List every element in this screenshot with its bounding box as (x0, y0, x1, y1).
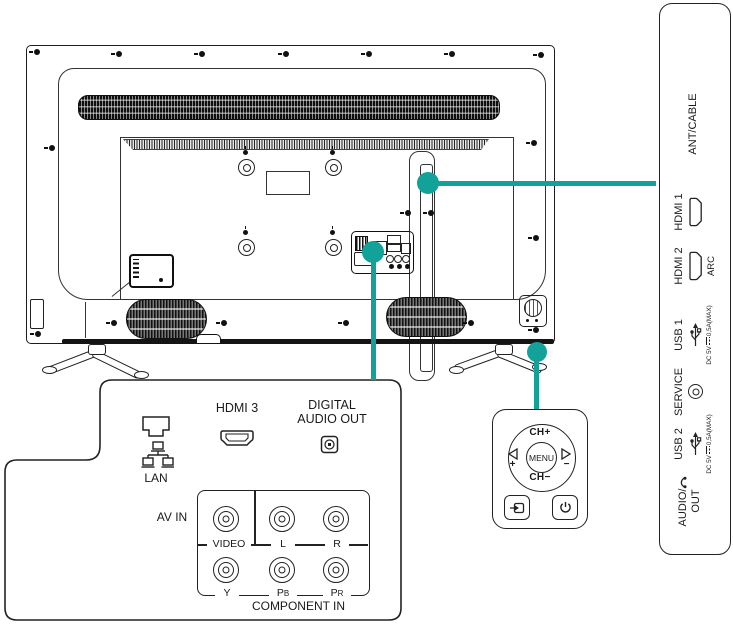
pr-label-sub: R (338, 589, 344, 598)
pb-label: PB (269, 587, 297, 600)
digital-audio-out-label: DIGITAL AUDIO OUT (292, 399, 372, 426)
pb-label-main: P (277, 587, 284, 599)
lan-network-icon (141, 441, 174, 472)
digital-audio-out-label-line1: DIGITAL (292, 399, 372, 413)
hdmi-connector-icon (688, 251, 703, 281)
video-label: VIDEO (207, 538, 251, 551)
volume-up-label: + (510, 460, 516, 469)
channel-up-button[interactable]: CH+ (493, 427, 587, 438)
hdmi3-label: HDMI 3 (198, 401, 276, 415)
pr-label-main: P (331, 587, 338, 599)
digital-audio-out-label-line2: AUDIO OUT (292, 413, 372, 427)
dc-suffix: 0,5A(MAX) (706, 305, 713, 336)
callout-line-bottom-ports (371, 250, 376, 380)
tv-rear-connections-diagram: LAN HDMI 3 DIGITAL AUDIO OUT AV IN VIDEO (0, 0, 733, 632)
arc-label: ARC (706, 256, 717, 276)
control-pad-callout: CH+ CH− MENU + − (492, 409, 588, 529)
pr-label: PR (323, 587, 351, 600)
volume-down-button[interactable]: − (560, 448, 573, 469)
rca-jack-audio-l (269, 506, 295, 532)
rca-jack-y (213, 557, 239, 583)
rca-jack-video (213, 506, 239, 532)
av-box-divider (254, 490, 256, 545)
audio-out-label: AUDIO/ OUT (676, 476, 703, 527)
power-button[interactable] (552, 495, 578, 520)
callout-dot-control (527, 342, 547, 362)
callout-dot-bottom-ports (362, 241, 384, 263)
hdmi-connector-icon (219, 428, 255, 448)
audio-l-label: L (271, 538, 295, 551)
port-ant-cable: ANT/CABLE (660, 76, 727, 172)
volume-down-label: − (564, 460, 570, 469)
side-ports-panel-content: ANT/CABLE HDMI 1 HDMI 2 ARC USB 1 (660, 4, 727, 551)
headphone-icon (676, 476, 687, 489)
optical-out-icon (320, 435, 339, 454)
audio-out-label-line1: AUDIO/ (677, 489, 689, 527)
ant-cable-label: ANT/CABLE (687, 93, 699, 154)
audio-r-label: R (325, 538, 349, 551)
power-icon (559, 501, 572, 514)
av-in-label: AV IN (152, 510, 192, 524)
callout-line-side-ports (426, 181, 656, 186)
pb-label-sub: B (284, 589, 289, 598)
input-source-icon (509, 502, 525, 514)
rca-jack-audio-r (323, 506, 349, 532)
y-label: Y (215, 587, 239, 600)
dc-suffix: 0,5A(MAX) (706, 414, 713, 445)
lan-label: LAN (136, 471, 176, 485)
menu-button[interactable]: MENU (526, 442, 557, 473)
input-source-button[interactable] (504, 495, 530, 520)
component-in-label: COMPONENT IN (226, 599, 371, 613)
rca-jack-pb (269, 557, 295, 583)
audio-out-label-line2: OUT (690, 489, 702, 512)
lan-jack-icon (141, 416, 171, 439)
channel-down-button[interactable]: CH− (493, 472, 587, 483)
rca-jack-pr (323, 557, 349, 583)
callout-dot-side-ports (417, 172, 439, 194)
side-ports-panel: ANT/CABLE HDMI 1 HDMI 2 ARC USB 1 (659, 3, 731, 555)
volume-up-button[interactable]: + (506, 448, 519, 469)
hdmi2-label: HDMI 2 (673, 247, 685, 284)
connections-callout: LAN HDMI 3 DIGITAL AUDIO OUT AV IN VIDEO (0, 0, 733, 632)
port-audio-out: AUDIO/ OUT (660, 453, 727, 549)
